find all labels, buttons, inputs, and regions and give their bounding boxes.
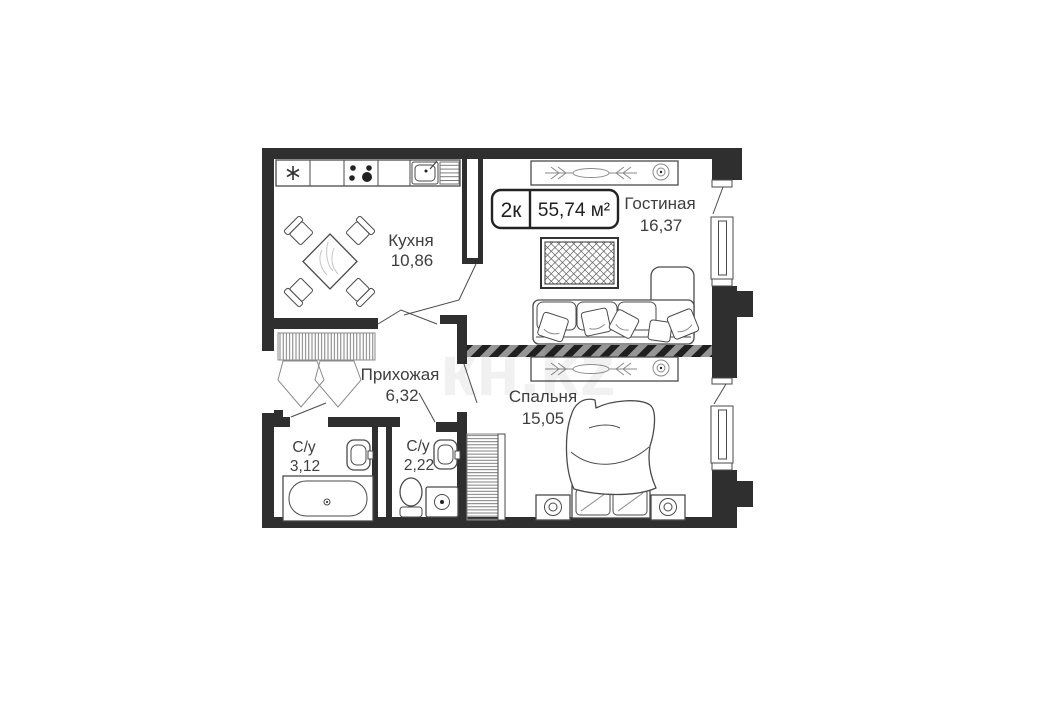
wash-basin-icon <box>434 440 460 469</box>
coat-rack <box>278 333 375 360</box>
chair <box>284 276 315 307</box>
label-bedroom-area: 15,05 <box>522 409 565 428</box>
door-leaf <box>378 310 437 324</box>
blanket <box>566 399 656 494</box>
toilet-icon <box>400 478 422 517</box>
chair <box>284 216 315 247</box>
unit-badge: 2к 55,74 м² <box>492 190 618 228</box>
shelf-unit <box>467 434 505 520</box>
floorplan-drawing: 2к 55,74 м² Кухня 10,86 Гостиная 16,37 П… <box>0 0 1063 709</box>
label-living-name: Гостиная <box>624 194 695 213</box>
label-living-area: 16,37 <box>640 216 683 235</box>
nightstand <box>536 495 570 520</box>
living-room <box>531 161 700 344</box>
kitchen-counter <box>276 160 460 186</box>
window-opening-line <box>713 187 723 214</box>
vent-shaft-icon <box>462 159 483 264</box>
badge-area: 55,74 м² <box>538 200 610 221</box>
label-bathroom2-area: 2,22 <box>404 457 434 474</box>
door-leaf <box>419 393 435 422</box>
nightstand <box>651 495 685 520</box>
bathtub-icon <box>283 476 373 521</box>
door-leaf <box>291 403 326 417</box>
hanger-icon <box>278 361 324 407</box>
label-bathroom1-name: С/у <box>292 439 316 456</box>
rug <box>541 238 618 288</box>
label-hallway-area: 6,32 <box>385 386 418 405</box>
bed <box>566 399 656 518</box>
window-opening-line <box>714 384 726 404</box>
label-bathroom1-area: 3,12 <box>290 458 320 475</box>
window <box>711 384 733 463</box>
dining-table <box>303 234 357 289</box>
chair <box>344 216 375 247</box>
floorplan-page: 2к 55,74 м² Кухня 10,86 Гостиная 16,37 П… <box>0 0 1063 709</box>
watermark: кн.kz <box>440 331 616 411</box>
chair <box>344 276 375 307</box>
door-leaf <box>404 264 476 315</box>
wardrobe <box>531 161 678 185</box>
hanger-icon <box>315 361 361 407</box>
wash-basin-icon <box>347 440 373 470</box>
kitchen-sink-icon <box>412 161 459 184</box>
dining-set <box>284 216 376 308</box>
label-bathroom2-name: С/у <box>406 438 430 455</box>
badge-type: 2к <box>501 199 523 222</box>
washing-machine-icon <box>426 487 458 517</box>
label-kitchen-area: 10,86 <box>391 251 434 270</box>
label-hallway-name: Прихожая <box>361 365 440 384</box>
window <box>711 187 733 279</box>
label-kitchen-name: Кухня <box>388 231 434 250</box>
